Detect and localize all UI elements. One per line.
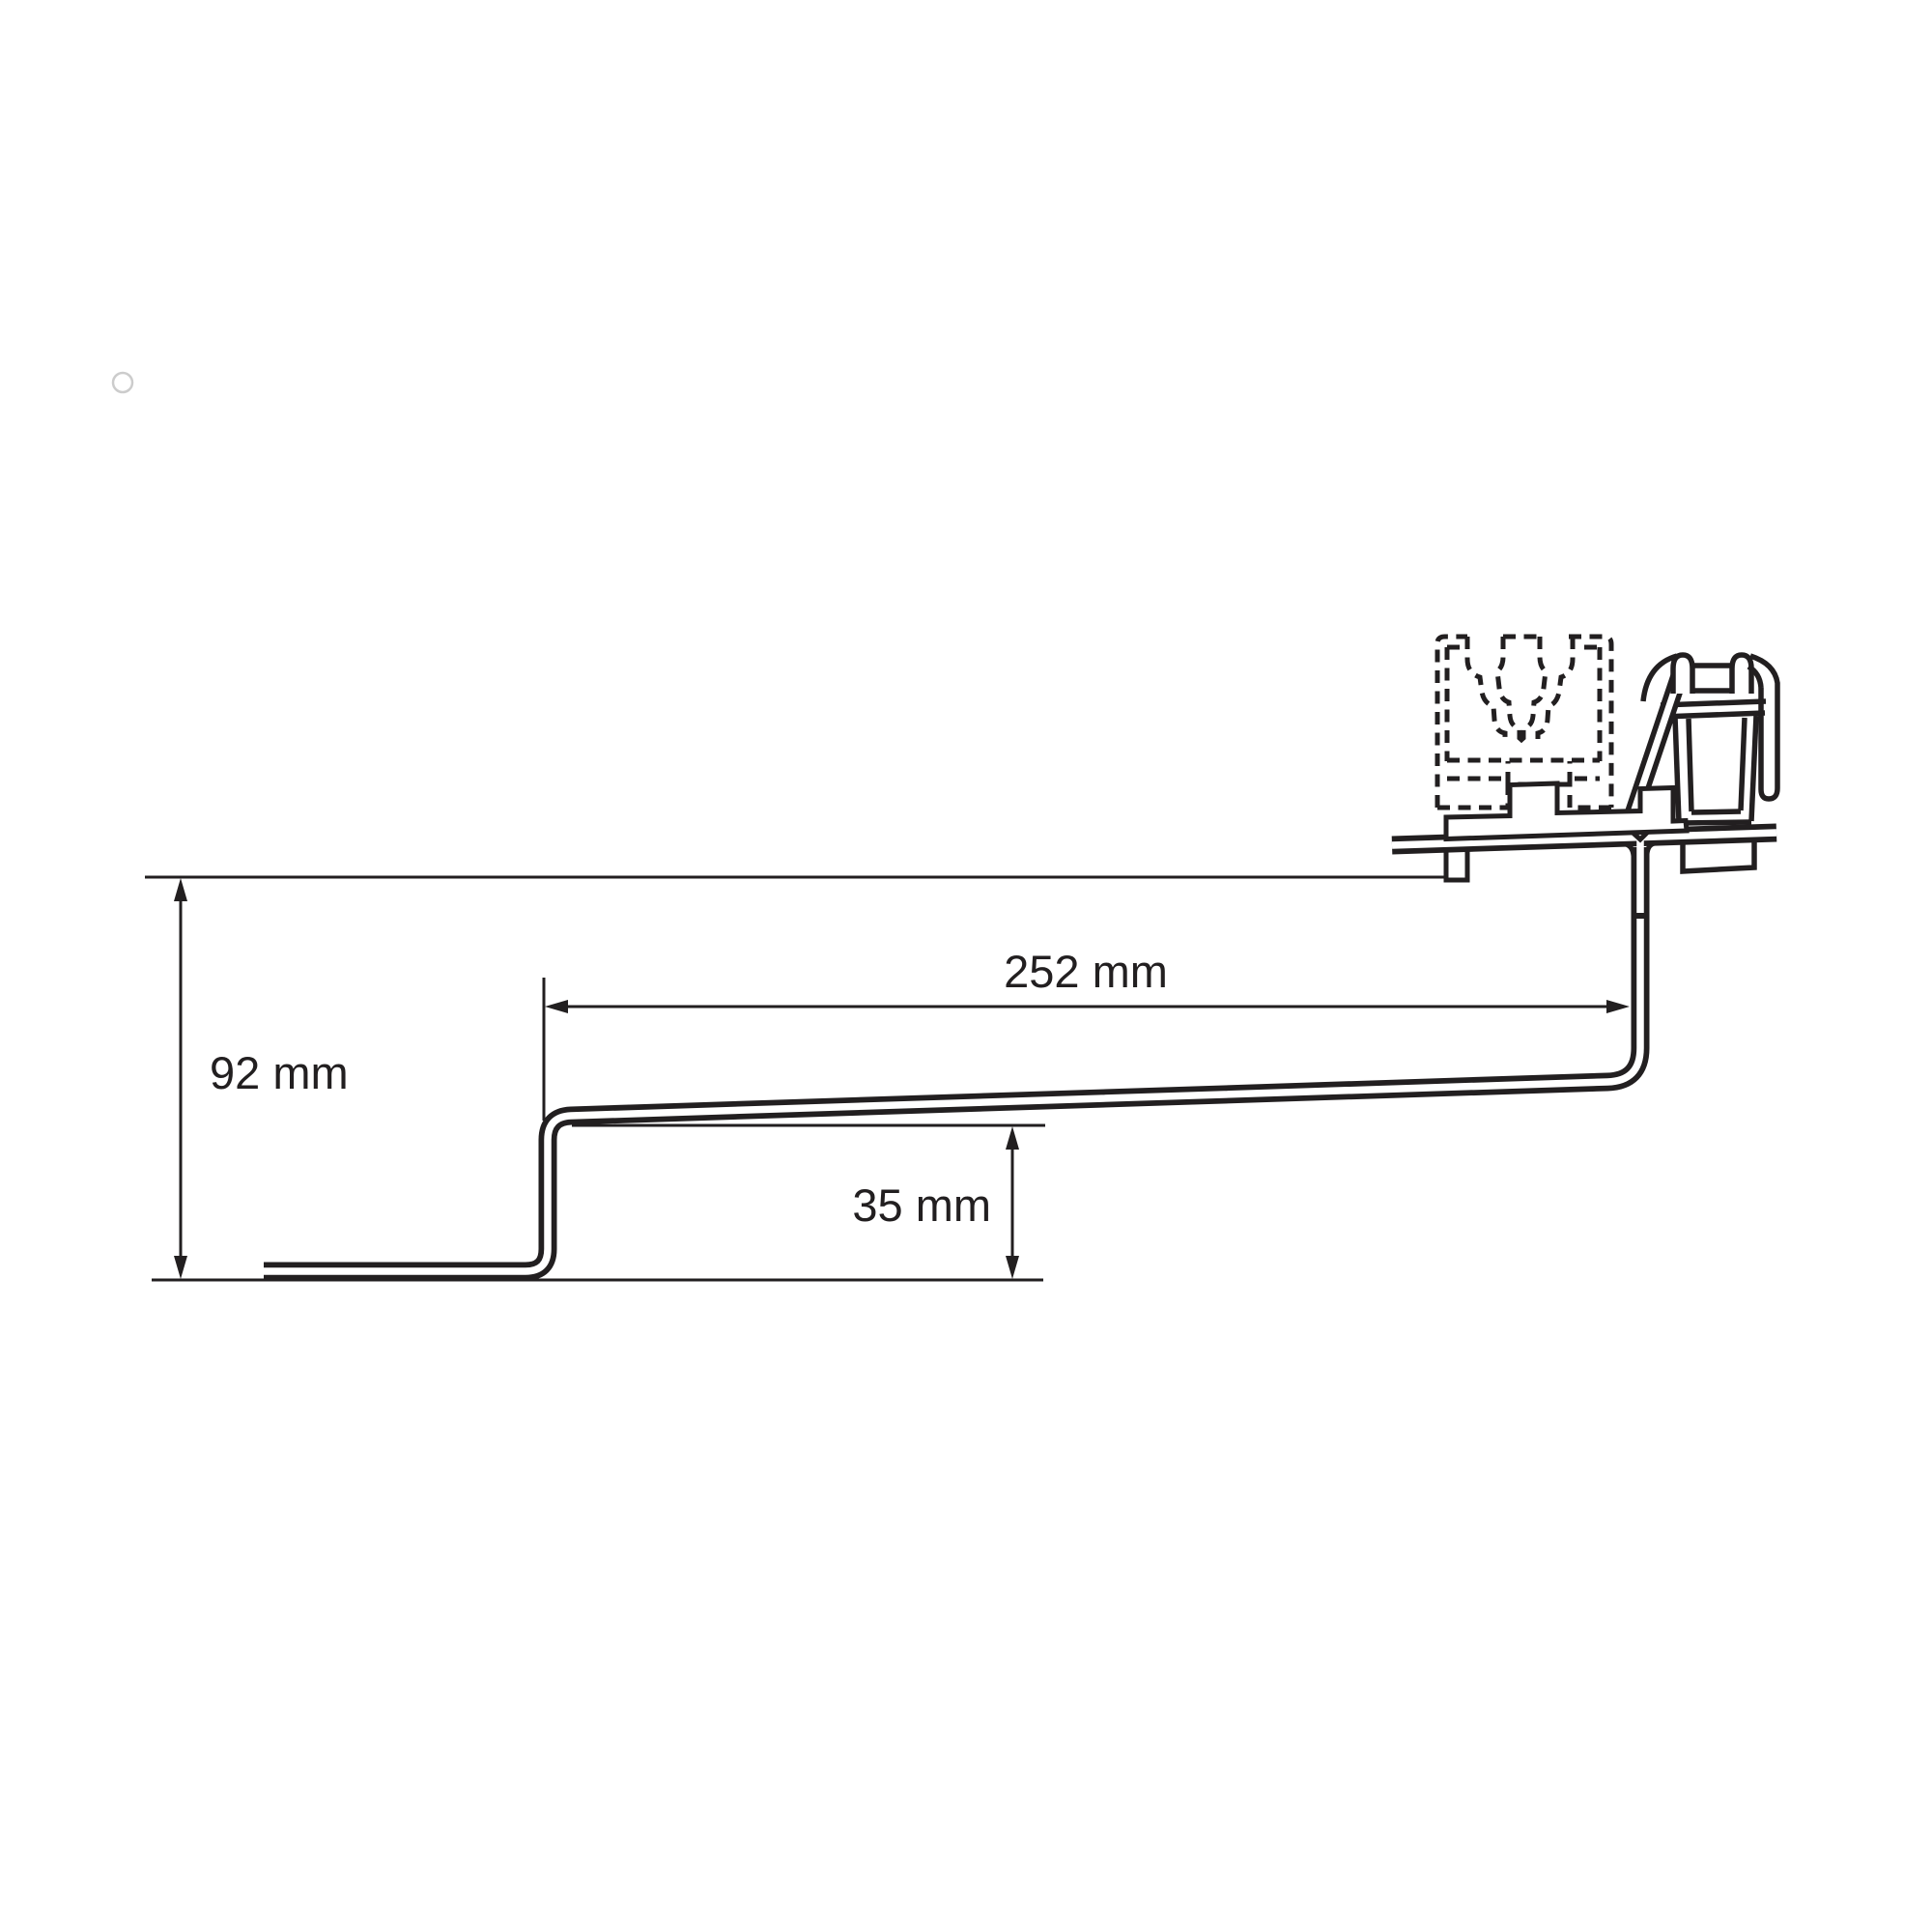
drawing-canvas: 92 mm 252 mm 35 mm	[0, 0, 1932, 1932]
rail-clamp-body	[1661, 701, 1766, 823]
label-height-92mm: 92 mm	[210, 1047, 349, 1098]
arrow-35-down	[1006, 1256, 1019, 1279]
arrow-252-right	[1606, 1000, 1630, 1013]
faint-bullet-circle	[113, 373, 132, 392]
arrow-92-up	[174, 878, 187, 901]
mounting-rail-dashed-profile	[1437, 637, 1611, 808]
label-step-35mm: 35 mm	[852, 1179, 991, 1231]
arrow-252-left	[545, 1000, 568, 1013]
adapter-plate-with-key	[1446, 783, 1687, 839]
label-length-252mm: 252 mm	[1004, 946, 1168, 997]
roof-hook-strip	[264, 829, 1776, 1271]
roof-hook-diagram: 92 mm 252 mm 35 mm	[0, 0, 1932, 1932]
arrow-35-up	[1006, 1126, 1019, 1150]
arrow-92-down	[174, 1256, 187, 1279]
